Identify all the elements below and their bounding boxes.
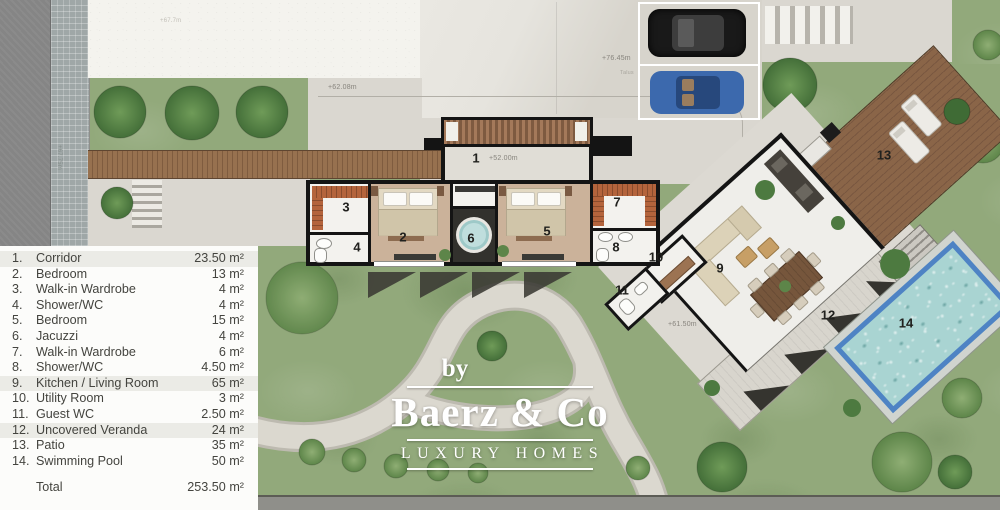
legend-name: Swimming Pool [36,454,172,468]
legend-number: 2. [12,267,36,281]
legend-number: 1. [12,251,36,265]
legend-row: 11.Guest WC2.50 m² [0,407,258,423]
legend-area: 4 m² [172,298,244,312]
elevation-label: +52.00m [489,155,518,162]
room-label-4: 4 [353,240,360,255]
room-label-13: 13 [877,148,891,163]
legend-area: 65 m² [172,376,244,390]
watermark: by Baerz & Co LUXURY HOMES [370,355,630,470]
legend-name: Uncovered Veranda [36,423,172,437]
legend-name: Corridor [36,251,172,265]
legend-number: 3. [12,282,36,296]
legend-area: 13 m² [172,267,244,281]
room-label-8: 8 [612,240,619,255]
room-label-10: 10 [649,250,663,265]
legend-row: 6.Jacuzzi4 m² [0,329,258,345]
legend-row: 7.Walk-in Wardrobe6 m² [0,345,258,361]
legend-row: 12.Uncovered Veranda24 m² [0,423,258,439]
legend-row: 3.Walk-in Wardrobe4 m² [0,282,258,298]
legend-row: 10.Utility Room3 m² [0,391,258,407]
site-plan: 1 2 3 4 5 6 7 8 9 10 11 12 13 14 +62.08m… [0,0,1000,510]
legend-row: 8.Shower/WC4.50 m² [0,360,258,376]
legend-name: Walk-in Wardrobe [36,282,172,296]
legend-number: 10. [12,391,36,405]
elevation-label: +61.50m [668,321,697,328]
legend-name: Guest WC [36,407,172,421]
bush [755,180,775,200]
legend-number: 13. [12,438,36,452]
legend-row: 13.Patio35 m² [0,438,258,454]
elevation-label: +67.75m [56,145,62,170]
room-label-1: 1 [472,151,479,166]
legend-area: 15 m² [172,313,244,327]
elevation-label: +67.7m [160,18,181,24]
legend-area: 4 m² [172,329,244,343]
room-label-6: 6 [467,231,474,246]
legend-number: 7. [12,345,36,359]
legend-row: 1.Corridor23.50 m² [0,251,258,267]
legend-row: 9.Kitchen / Living Room65 m² [0,376,258,392]
legend-name: Bedroom [36,267,172,281]
watermark-brand: Baerz & Co [370,388,630,436]
room-label-5: 5 [543,224,550,239]
room-label-12: 12 [821,308,835,323]
legend-name: Shower/WC [36,360,172,374]
legend-row: 2.Bedroom13 m² [0,267,258,283]
legend-total-label: Total [36,480,172,494]
room-label-11: 11 [615,283,629,298]
legend-total-row: .Total253.50 m² [0,480,258,496]
room-label-3: 3 [342,200,349,215]
legend-number: 14. [12,454,36,468]
legend-number: 9. [12,376,36,390]
legend-number: 11. [12,407,36,421]
room-label-9: 9 [716,261,723,276]
legend-number: 6. [12,329,36,343]
legend-name: Walk-in Wardrobe [36,345,172,359]
legend-row: 5.Bedroom15 m² [0,313,258,329]
legend-name: Shower/WC [36,298,172,312]
legend-row: 14.Swimming Pool50 m² [0,454,258,470]
bush [704,380,720,396]
legend-name: Bedroom [36,313,172,327]
legend-number: 12. [12,423,36,437]
legend-area: 2.50 m² [172,407,244,421]
legend-area: 35 m² [172,438,244,452]
watermark-rule [407,439,593,441]
bush [843,399,861,417]
legend-area: 3 m² [172,391,244,405]
legend-name: Kitchen / Living Room [36,376,172,390]
legend-name: Patio [36,438,172,452]
elevation-note: Talus [620,70,634,76]
legend-area: 23.50 m² [172,251,244,265]
legend-name: Utility Room [36,391,172,405]
room-label-14: 14 [899,316,913,331]
legend-name: Jacuzzi [36,329,172,343]
legend-area: 6 m² [172,345,244,359]
legend-area: 50 m² [172,454,244,468]
room-label-7: 7 [613,195,620,210]
legend-total-value: 253.50 m² [172,480,244,494]
room-label-2: 2 [399,230,406,245]
watermark-by: by [280,355,630,383]
elevation-label: +62.08m [328,84,357,91]
legend-number: 5. [12,313,36,327]
legend-area: 4.50 m² [172,360,244,374]
bush [831,216,845,230]
legend-area: 4 m² [172,282,244,296]
watermark-tagline: LUXURY HOMES [375,445,630,463]
legend-row: 4.Shower/WC4 m² [0,298,258,314]
legend-number: 8. [12,360,36,374]
legend-number: 4. [12,298,36,312]
elevation-label: +76.45m [602,55,631,62]
watermark-rule [407,468,593,470]
legend-area: 24 m² [172,423,244,437]
legend-panel: 1.Corridor23.50 m² 2.Bedroom13 m² 3.Walk… [0,246,258,510]
site-boundary [254,495,1000,510]
